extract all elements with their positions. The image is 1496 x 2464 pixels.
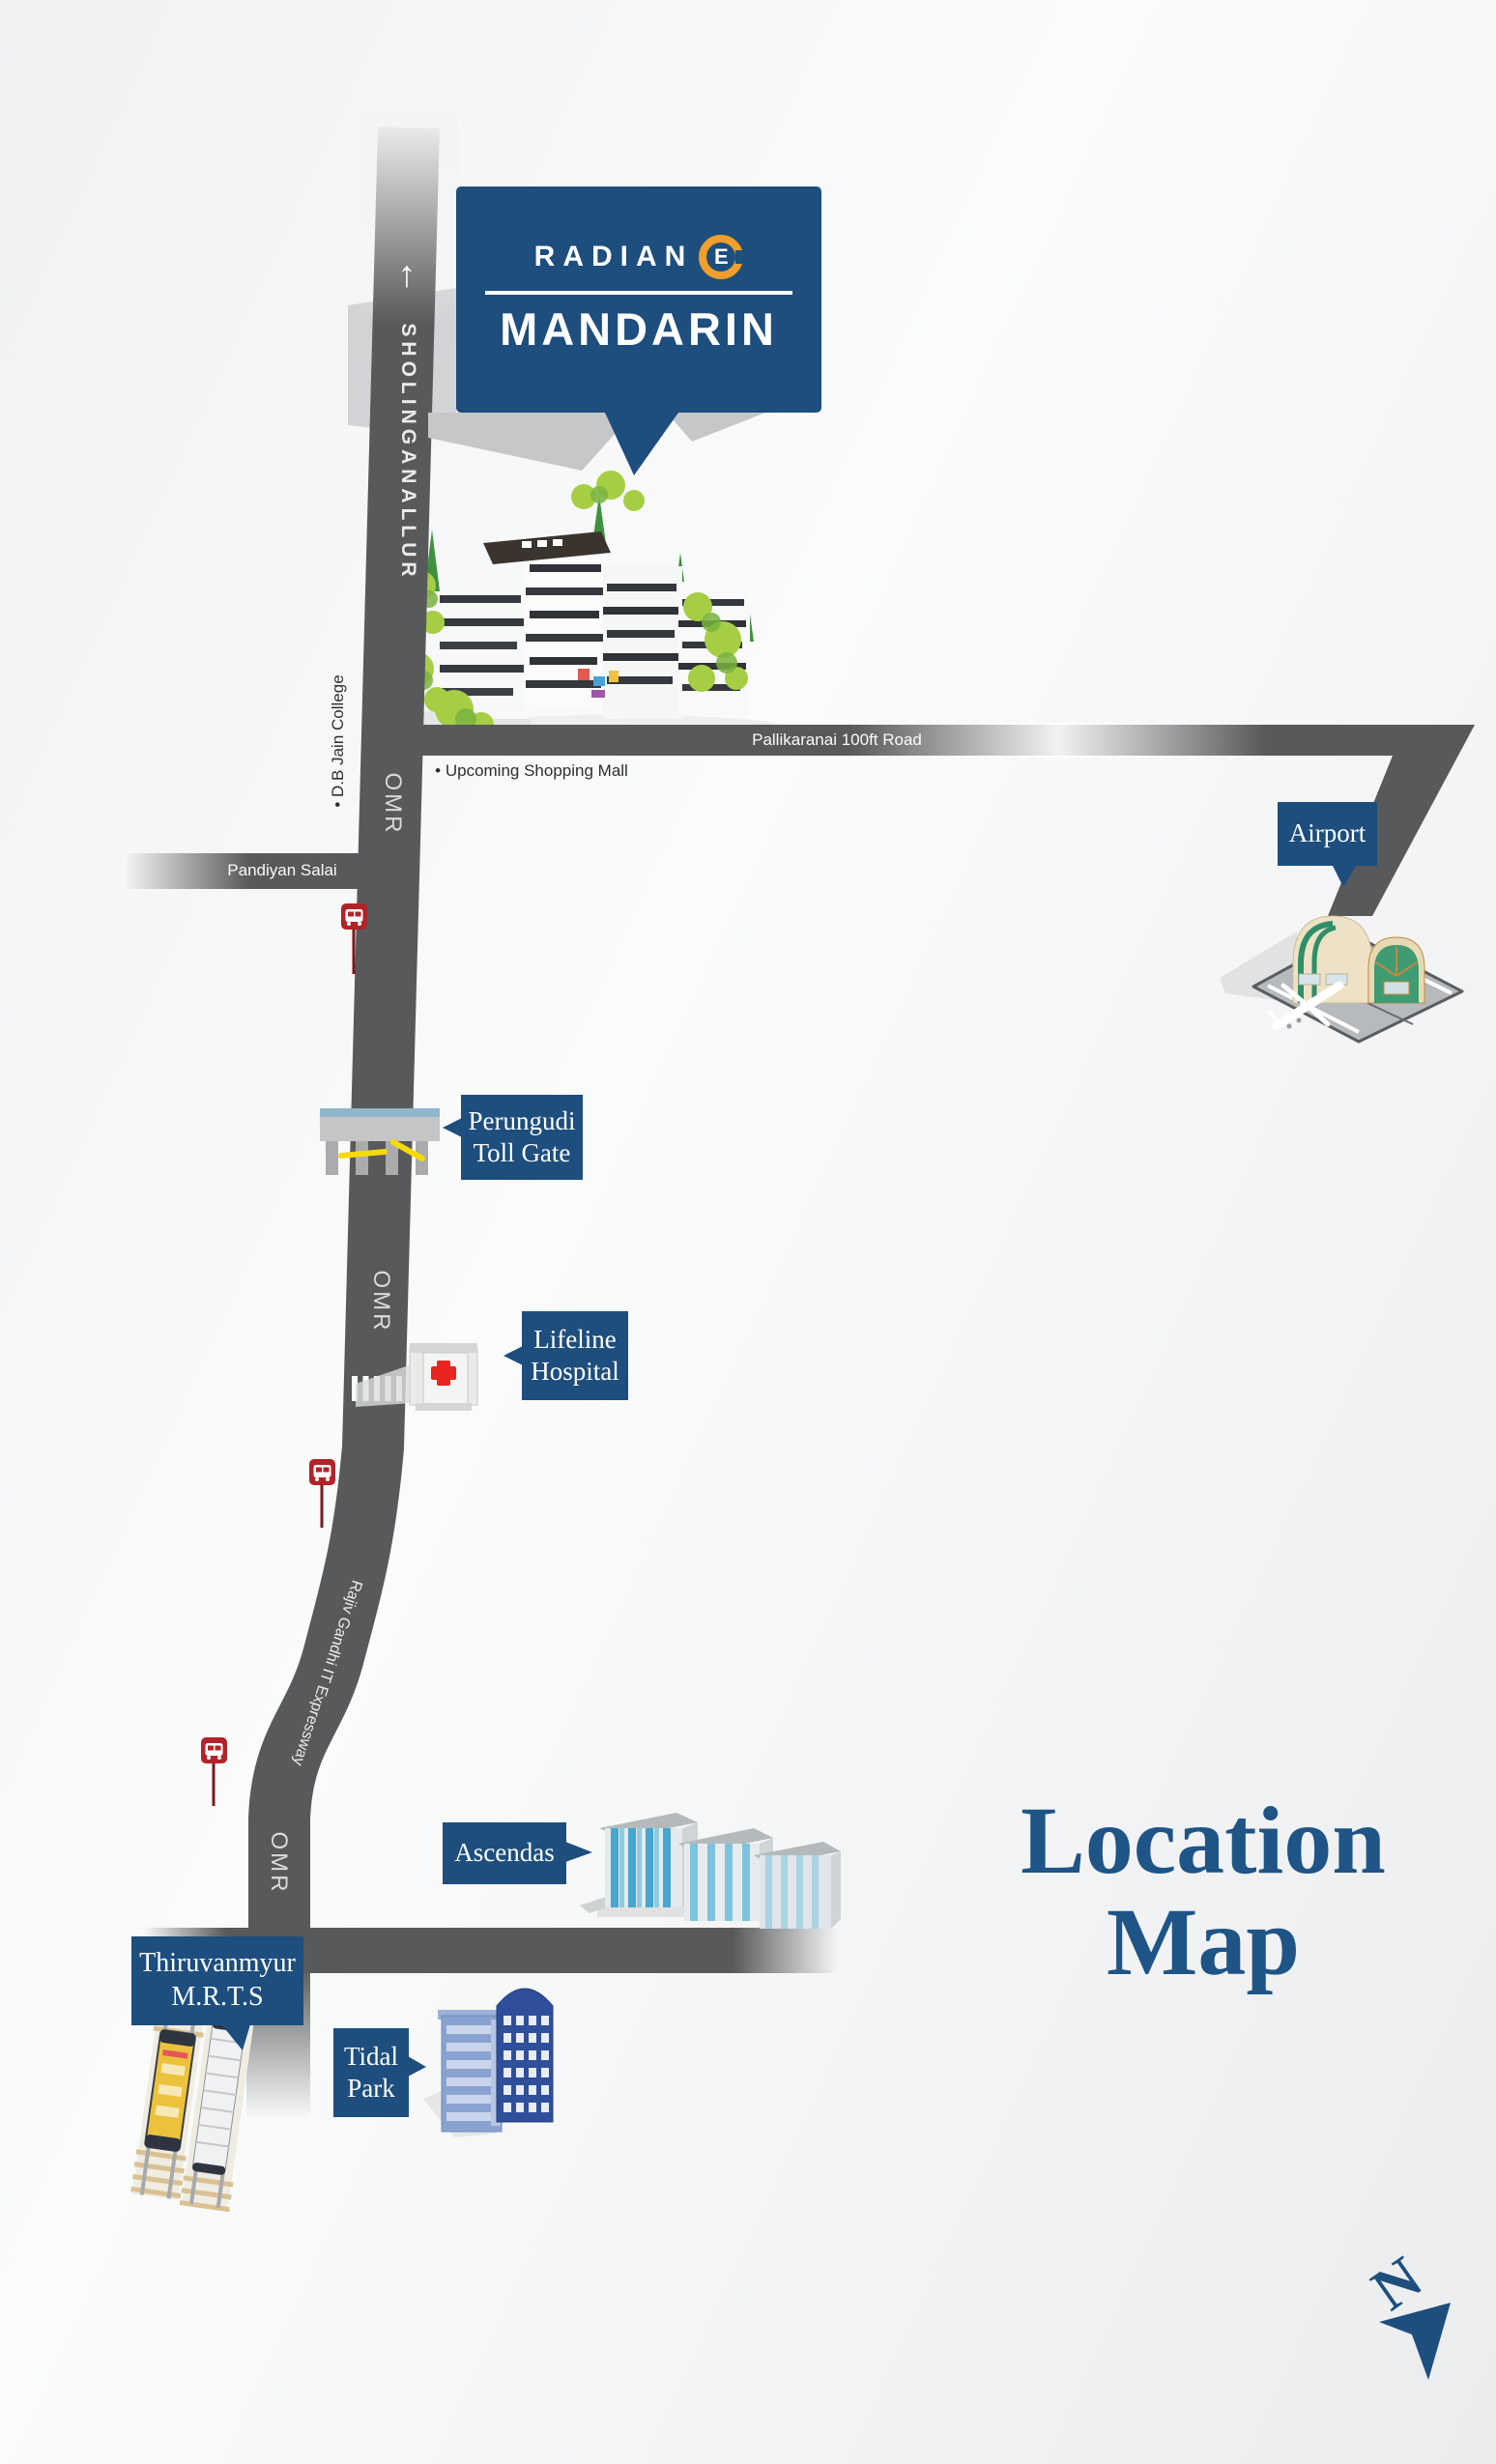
road-label-pandiyan-salai: Pandiyan Salai (227, 861, 336, 880)
brand-divider (485, 291, 792, 295)
label-ascendas: Ascendas (443, 1822, 566, 1884)
label-mrts: Thiruvanmyur M.R.T.S (131, 1936, 303, 2025)
bus-stop-icon (201, 1737, 227, 1806)
road-label-omr-3: OMR (265, 1832, 292, 1895)
label-airport: Airport (1278, 802, 1377, 866)
location-map: RADIAN E MANDARIN ↑ SHOLINGANALLUR OMR O… (0, 0, 1496, 2464)
brand-name: RADIAN (534, 241, 694, 273)
tidal-label-line2: Park (333, 2073, 409, 2105)
label-tidal-park: Tidal Park (333, 2028, 409, 2117)
airport-label-text: Airport (1278, 817, 1377, 849)
road-label-omr-1: OMR (379, 773, 406, 836)
tidal-label-line1: Tidal (333, 2041, 409, 2073)
note-upcoming-mall: • Upcoming Shopping Mall (435, 761, 628, 781)
page-title-line2: Map (952, 1891, 1454, 1992)
road-label-omr-2: OMR (367, 1271, 394, 1333)
page-title: Location Map (952, 1790, 1454, 1992)
road-label-pallikaranai: Pallikaranai 100ft Road (752, 731, 922, 750)
toll-label-line2: Toll Gate (461, 1137, 583, 1169)
up-arrow-icon: ↑ (398, 255, 417, 297)
hospital-label-line2: Hospital (522, 1356, 628, 1388)
hospital-label-line1: Lifeline (522, 1324, 628, 1356)
tidal-park-illustration (423, 1989, 553, 2137)
callout-shadow-bottom (428, 413, 634, 471)
ascendas-label-text: Ascendas (443, 1837, 566, 1869)
brand-e-letter: E (714, 244, 729, 270)
mrts-label-line2: M.R.T.S (131, 1981, 303, 2015)
page-title-line1: Location (952, 1790, 1454, 1891)
ascendas-illustration (580, 1813, 949, 1942)
bus-stop-icon (309, 1459, 335, 1528)
note-db-jain-college: • D.B Jain College (329, 674, 348, 807)
mrts-label-line1: Thiruvanmyur (131, 1947, 303, 1981)
brand-logo: RADIAN E (456, 235, 821, 279)
road-omr (279, 128, 409, 1973)
brand-c-ring-icon: E (699, 235, 743, 279)
north-arrow-icon (1379, 2303, 1451, 2380)
label-hospital: Lifeline Hospital (522, 1311, 628, 1400)
label-toll-gate: Perungudi Toll Gate (461, 1095, 583, 1180)
airport-illustration (1220, 916, 1462, 1042)
road-label-sholinganallur: SHOLINGANALLUR (396, 323, 419, 581)
project-name: MANDARIN (456, 302, 821, 356)
callout-pointer (605, 413, 678, 475)
project-callout: RADIAN E MANDARIN (456, 186, 821, 413)
toll-label-line1: Perungudi (461, 1105, 583, 1137)
radiance-complex-illustration (396, 471, 783, 738)
callout-shadow-right (667, 413, 765, 442)
